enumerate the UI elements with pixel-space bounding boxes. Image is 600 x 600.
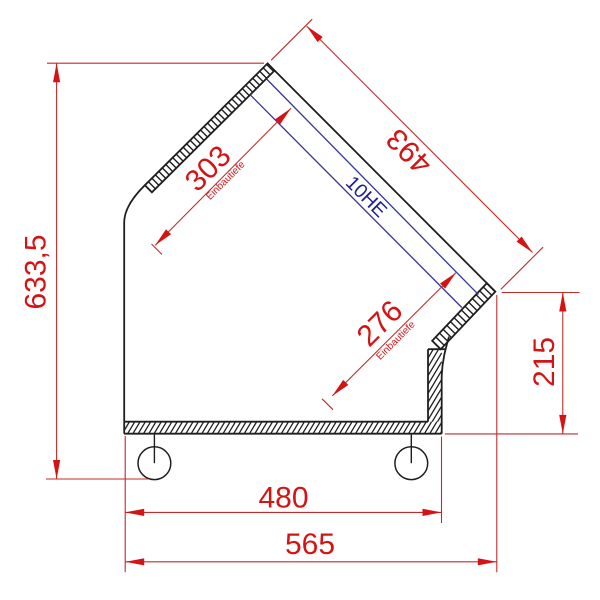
svg-text:480: 480 — [258, 482, 308, 515]
svg-text:215: 215 — [528, 337, 561, 387]
svg-text:633,5: 633,5 — [20, 234, 53, 309]
svg-text:565: 565 — [285, 528, 335, 561]
